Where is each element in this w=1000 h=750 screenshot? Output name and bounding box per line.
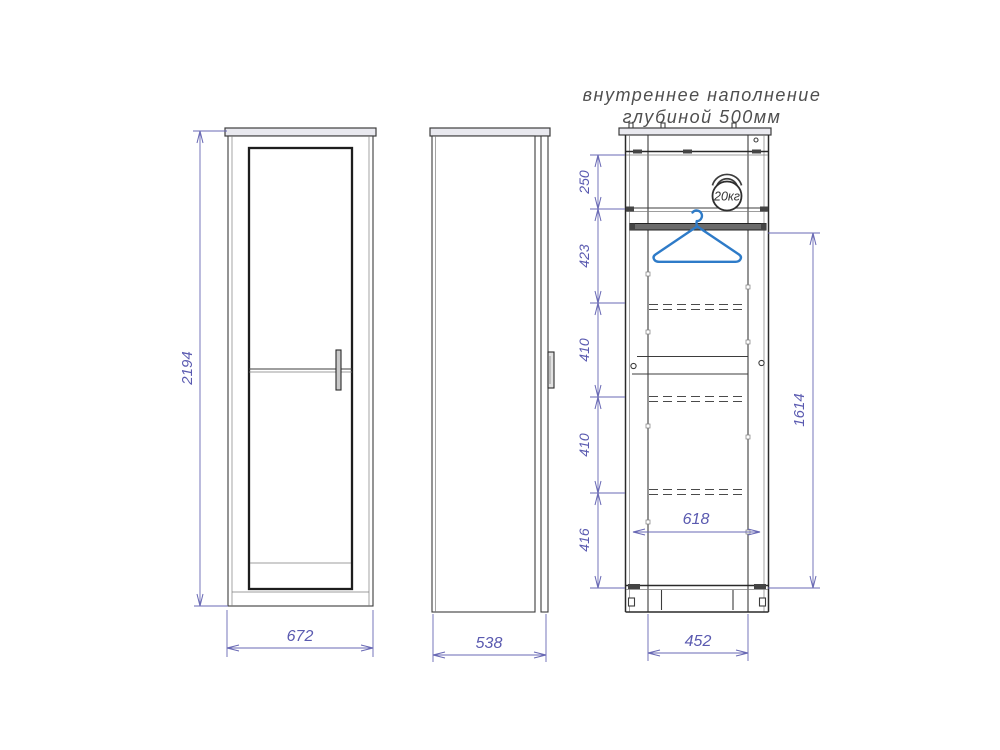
weight-capacity-label: 20кг [713,190,740,204]
side-door-edge [541,136,548,612]
base-width-dimension-group: 452 [648,614,748,661]
side-view [430,128,554,612]
wardrobe-technical-drawing: внутреннее наполнение глубиной 500мм 219… [0,0,1000,750]
door-handle-side [548,352,554,388]
hanging-section-dimension: 423 [576,244,592,268]
adjustable-shelf-positions [649,305,747,495]
title-line-1: внутреннее наполнение [583,85,822,105]
hanging-height-dimension: 1614 [791,393,808,426]
bottom-section-dimension: 416 [576,528,592,552]
side-top-panel [430,128,550,136]
front-view [225,128,376,606]
fitting-hole [754,138,758,142]
front-top-panel [225,128,376,136]
hanger-icon [654,211,741,262]
shelf-section-2-dimension: 410 [576,433,592,457]
side-depth-dimension: 538 [476,635,503,652]
title-line-2: глубиной 500мм [623,107,782,127]
leg-fitting [760,598,766,606]
front-height-dimension: 2194 [179,351,196,385]
door-handle-front [336,350,341,390]
side-view-dimensions: 538 [433,614,546,662]
leg-fitting [629,598,635,606]
inner-width-dimension-group: 618 [633,511,760,532]
top-section-dimension: 250 [576,170,592,195]
cam-lock [759,360,764,365]
inner-width-dimension: 618 [683,511,710,528]
drawing-title: внутреннее наполнение глубиной 500мм [583,85,822,127]
weight-capacity-icon: 20кг [713,177,742,211]
front-width-dimension: 672 [287,628,314,645]
interior-dimension-chain: 250 423 410 410 416 [576,155,625,588]
side-carcass [432,136,535,612]
shelf-section-1-dimension: 410 [576,338,592,362]
cam-lock [631,363,636,368]
base-width-dimension: 452 [685,633,712,650]
interior-view: 20кг [619,123,771,612]
installed-shelf [631,357,764,375]
interior-top-panel [619,128,771,135]
hanging-height-dimension-group: 1614 [768,233,820,588]
